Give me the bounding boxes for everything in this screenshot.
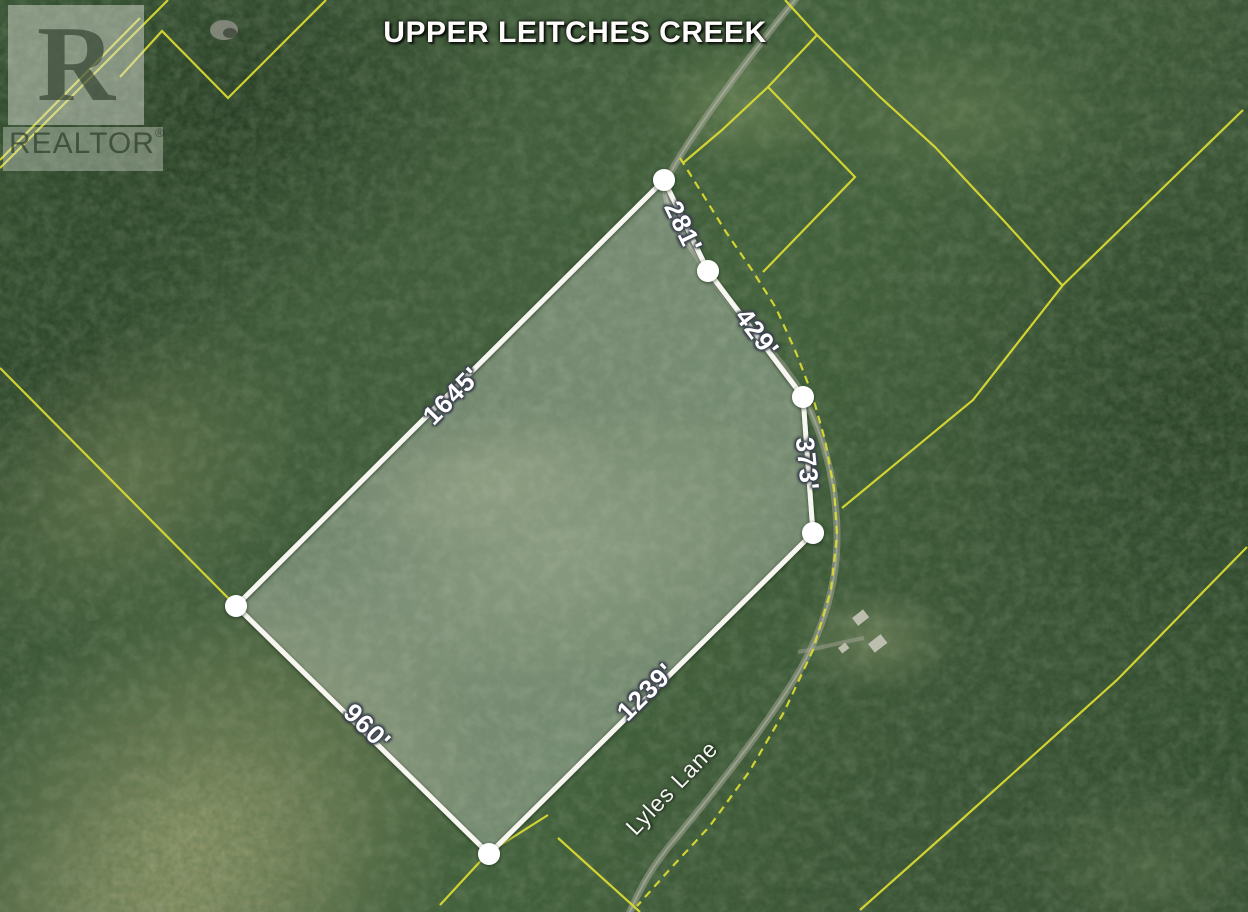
realtor-r-monogram: R	[37, 11, 115, 119]
aerial-map-canvas: 281' 429' 373' 1239' 960' 1645' Lyles La…	[0, 0, 1248, 912]
realtor-wordmark-text: REALTOR	[9, 129, 155, 159]
realtor-logo: R	[8, 5, 144, 125]
registered-trademark-icon: ®	[155, 127, 165, 139]
realtor-wordmark: REALTOR ®	[3, 127, 163, 171]
page-title: UPPER LEITCHES CREEK	[383, 16, 766, 50]
map-overlay-svg	[0, 0, 1248, 912]
